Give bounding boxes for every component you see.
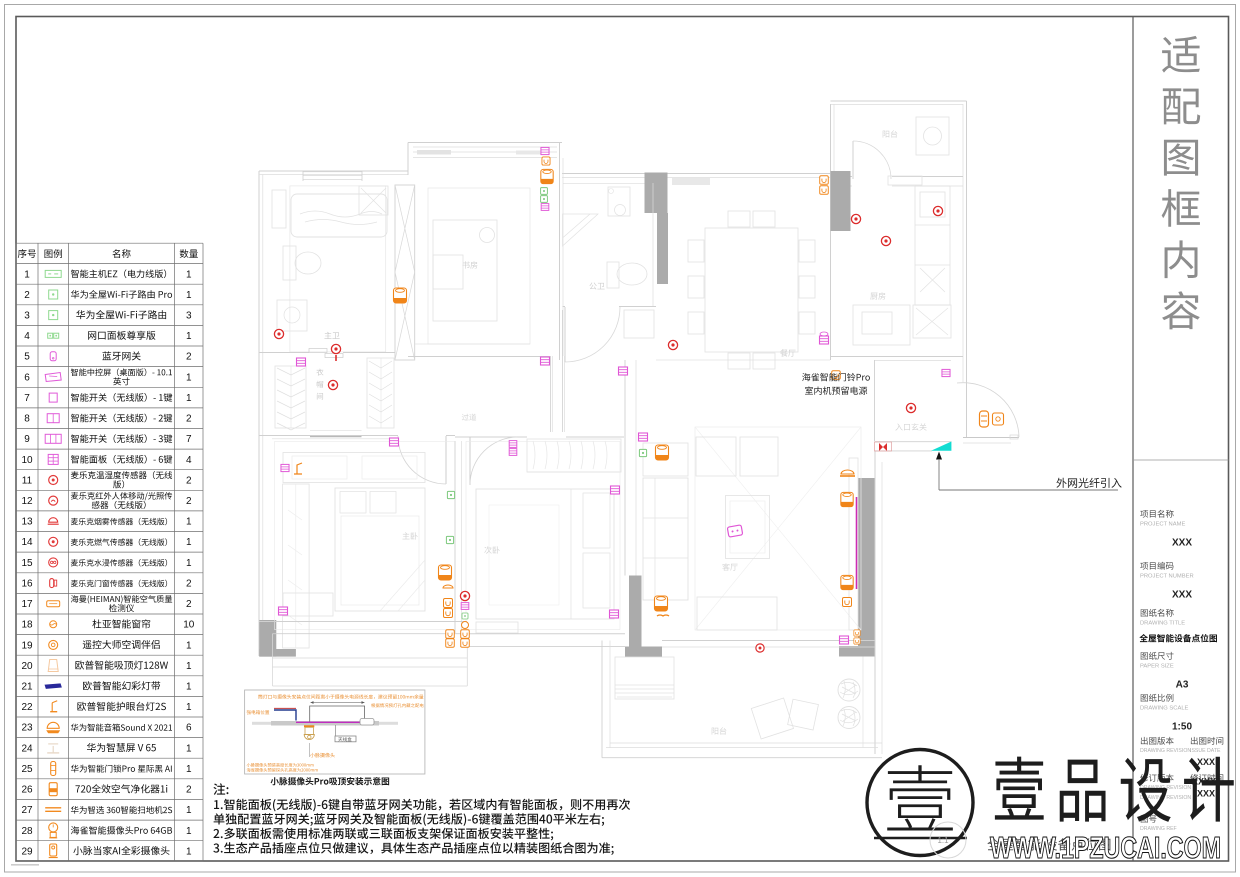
- svg-text:8: 8: [24, 414, 30, 425]
- svg-text:13: 13: [21, 517, 33, 528]
- svg-text:1: 1: [186, 846, 192, 857]
- svg-text:WWW.1PZUCAI.COM: WWW.1PZUCAI.COM: [990, 830, 1221, 865]
- svg-text:2: 2: [186, 414, 192, 425]
- svg-text:15: 15: [21, 558, 33, 569]
- svg-text:27: 27: [21, 805, 33, 816]
- svg-text:XXX: XXX: [1197, 789, 1215, 799]
- svg-text:1: 1: [186, 331, 192, 342]
- svg-text:DRAWING SCALE: DRAWING SCALE: [1140, 706, 1189, 712]
- svg-text:25: 25: [21, 764, 33, 775]
- svg-text:1: 1: [186, 393, 192, 404]
- svg-text:2: 2: [186, 785, 192, 796]
- svg-text:9: 9: [24, 434, 30, 445]
- svg-text:XXX: XXX: [1197, 757, 1215, 767]
- svg-text:XXX: XXX: [1172, 538, 1192, 549]
- svg-text:XXX: XXX: [1172, 590, 1192, 601]
- svg-text:23: 23: [21, 723, 33, 734]
- svg-text:1: 1: [186, 269, 192, 280]
- svg-text:19: 19: [21, 640, 33, 651]
- svg-text:1: 1: [186, 517, 192, 528]
- svg-text:2: 2: [186, 352, 192, 363]
- svg-text:3: 3: [186, 311, 192, 322]
- svg-text:1: 1: [186, 558, 192, 569]
- svg-text:4: 4: [24, 331, 30, 342]
- svg-text:14: 14: [21, 537, 33, 548]
- svg-text:10: 10: [183, 620, 195, 631]
- svg-text:1: 1: [186, 743, 192, 754]
- svg-text:1: 1: [186, 826, 192, 837]
- svg-text:DRAWING REVISION: DRAWING REVISION: [1140, 748, 1191, 754]
- svg-text:1: 1: [186, 290, 192, 301]
- svg-text:1: 1: [186, 682, 192, 693]
- svg-text:16: 16: [21, 579, 33, 590]
- svg-text:24: 24: [21, 743, 33, 754]
- svg-text:1: 1: [24, 269, 30, 280]
- svg-text:1:1: 1:1: [937, 836, 949, 845]
- svg-text:1: 1: [186, 661, 192, 672]
- svg-text:1: 1: [186, 702, 192, 713]
- svg-text:1: 1: [186, 372, 192, 383]
- svg-text:21: 21: [21, 682, 33, 693]
- svg-text:1: 1: [186, 805, 192, 816]
- svg-text:7: 7: [24, 393, 30, 404]
- svg-text:PROJECT NAME: PROJECT NAME: [1140, 522, 1185, 528]
- svg-text:29: 29: [21, 846, 33, 857]
- svg-text:1: 1: [186, 537, 192, 548]
- svg-text:17: 17: [21, 599, 33, 610]
- svg-text:2: 2: [186, 475, 192, 486]
- svg-text:28: 28: [21, 826, 33, 837]
- svg-text:1: 1: [186, 764, 192, 775]
- svg-text:5: 5: [24, 352, 30, 363]
- svg-text:7: 7: [186, 434, 192, 445]
- svg-text:A3: A3: [1176, 680, 1189, 691]
- svg-text:26: 26: [21, 785, 33, 796]
- svg-text:6: 6: [186, 723, 192, 734]
- svg-text:10: 10: [21, 455, 33, 466]
- svg-text:2: 2: [24, 290, 30, 301]
- svg-text:DRAWING TITLE: DRAWING TITLE: [1140, 621, 1185, 627]
- svg-text:18: 18: [21, 620, 33, 631]
- svg-text:3: 3: [24, 311, 30, 322]
- svg-text:20: 20: [21, 661, 33, 672]
- svg-text:ISSUE DATE: ISSUE DATE: [1190, 748, 1221, 754]
- svg-text:6: 6: [24, 372, 30, 383]
- svg-text:2: 2: [186, 599, 192, 610]
- svg-text:12: 12: [21, 496, 33, 507]
- svg-text:4: 4: [186, 455, 192, 466]
- svg-text:2: 2: [186, 579, 192, 590]
- svg-text:2: 2: [186, 496, 192, 507]
- svg-text:22: 22: [21, 702, 33, 713]
- svg-text:PROJECT NUMBER: PROJECT NUMBER: [1140, 574, 1194, 580]
- svg-text:11: 11: [22, 475, 33, 486]
- svg-text:1: 1: [186, 640, 192, 651]
- svg-text:PAPER SIZE: PAPER SIZE: [1140, 664, 1174, 670]
- svg-text:1:50: 1:50: [1172, 722, 1192, 733]
